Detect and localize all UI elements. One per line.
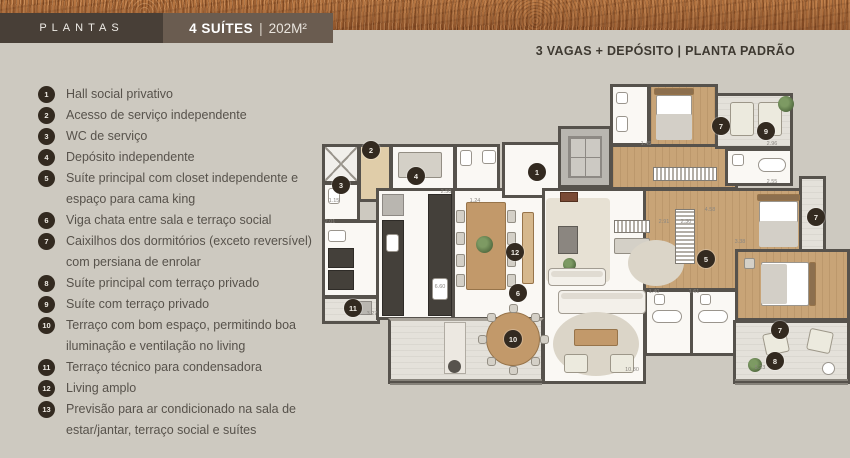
legend-text: Acesso de serviço independente <box>66 105 247 126</box>
plan-marker-3: 3 <box>332 176 350 194</box>
washer-icon <box>328 248 354 268</box>
legend-item: 10Terraço com bom espaço, permitindo boa… <box>38 315 320 357</box>
coffee-table <box>574 329 618 346</box>
terrace-chair <box>531 357 540 366</box>
terrace-chair <box>540 335 549 344</box>
legend-text: Caixilhos dos dormitórios (exceto revers… <box>66 231 320 273</box>
plan-marker-1: 1 <box>528 163 546 181</box>
legend-item: 11Terraço técnico para condensadora <box>38 357 320 378</box>
dimension-label: 2.55 <box>767 179 778 185</box>
terrace-chair <box>531 313 540 322</box>
kitchen-sink-icon <box>386 234 399 252</box>
dimension-label: 2.50 <box>441 189 452 195</box>
dimension-label: 2.96 <box>767 141 778 147</box>
terrace-chair <box>487 313 496 322</box>
bed-headboard <box>809 262 816 306</box>
dimension-label: 3.38 <box>735 239 746 245</box>
dryer-icon <box>328 270 354 290</box>
laundry-sink-icon <box>328 230 346 242</box>
legend-text: Hall social privativo <box>66 84 173 105</box>
plant-icon <box>778 96 794 112</box>
sink-icon <box>700 294 711 305</box>
legend-number-badge: 1 <box>38 86 55 103</box>
corridor-closet <box>653 167 717 181</box>
bathroom-divider-wall <box>690 292 693 353</box>
dimension-label: 10.80 <box>625 367 639 373</box>
tab-4-suites[interactable]: 4 SUÍTES | 202M² <box>163 13 333 43</box>
plan-marker-8: 8 <box>766 352 784 370</box>
terrace-private-br <box>733 320 850 384</box>
bed-blanket <box>759 221 798 247</box>
legend-text: Viga chata entre sala e terraço social <box>66 210 271 231</box>
legend-item: 1Hall social privativo <box>38 84 320 105</box>
dining-chair <box>456 210 465 223</box>
unit-area: 202M² <box>269 21 307 36</box>
legend-list: 1Hall social privativo2Acesso de serviço… <box>38 84 320 441</box>
toilet-icon <box>616 116 628 132</box>
legend-item: 6Viga chata entre sala e terraço social <box>38 210 320 231</box>
sink-icon <box>616 92 628 104</box>
plan-marker-10: 10 <box>504 330 522 348</box>
closet-independente <box>675 209 695 264</box>
bed-blanket <box>656 114 692 140</box>
plan-marker-9: 9 <box>757 122 775 140</box>
legend-item: 5Suíte principal com closet independente… <box>38 168 320 210</box>
bathtub-icon <box>652 310 682 323</box>
sink-icon <box>732 154 744 166</box>
dining-chair <box>456 254 465 267</box>
dimension-label: 1.45 <box>641 141 652 147</box>
dimension-label: 1.24 <box>470 198 481 204</box>
legend-number-badge: 4 <box>38 149 55 166</box>
parking-info-heading: 3 VAGAS + DEPÓSITO | PLANTA PADRÃO <box>536 44 795 58</box>
legend-text: Suíte principal com closet independente … <box>66 168 320 210</box>
legend-item: 2Acesso de serviço independente <box>38 105 320 126</box>
armchair <box>806 328 834 355</box>
terrace-chair <box>509 366 518 375</box>
plan-marker-6: 6 <box>509 284 527 302</box>
legend-number-badge: 8 <box>38 275 55 292</box>
unit-title: 4 SUÍTES <box>189 21 253 36</box>
legend-item: 13Previsão para ar condicionado na sala … <box>38 399 320 441</box>
dimension-label: 2.30 <box>681 219 692 225</box>
legend-text: WC de serviço <box>66 126 147 147</box>
legend-text: Terraço com bom espaço, permitindo boa i… <box>66 315 320 357</box>
balcony-rail <box>390 379 542 385</box>
legend-item: 7Caixilhos dos dormitórios (exceto rever… <box>38 231 320 273</box>
legend-item: 4Depósito independente <box>38 147 320 168</box>
elevator-car-icon <box>568 136 602 178</box>
dining-chair <box>456 232 465 245</box>
plan-marker-7: 7 <box>771 321 789 339</box>
plan-marker-7: 7 <box>807 208 825 226</box>
legend-number-badge: 3 <box>38 128 55 145</box>
bed-headboard <box>654 88 694 95</box>
sofa-main <box>558 290 646 314</box>
legend-text: Living amplo <box>66 378 136 399</box>
dimension-label: 6.60 <box>435 284 446 290</box>
tab-plantas[interactable]: PLANTAS <box>0 13 163 43</box>
dimension-label: 4.58 <box>705 207 716 213</box>
floor-plan: 123456797781011121.152.012.501.246.603.2… <box>320 82 850 394</box>
legend-number-badge: 9 <box>38 296 55 313</box>
bar-stool <box>448 360 461 373</box>
tv-console <box>558 226 578 254</box>
legend-text: Suíte principal com terraço privado <box>66 273 259 294</box>
legend-text: Previsão para ar condicionado na sala de… <box>66 399 320 441</box>
legend-number-badge: 13 <box>38 401 55 418</box>
lounge-chair <box>730 102 754 136</box>
legend-item: 8Suíte principal com terraço privado <box>38 273 320 294</box>
terrace-chair <box>487 357 496 366</box>
dimension-label: 1.40 <box>649 289 660 295</box>
dimension-label: 2.01 <box>325 219 336 225</box>
plan-marker-4: 4 <box>407 167 425 185</box>
plan-marker-5: 5 <box>697 250 715 268</box>
legend-number-badge: 11 <box>38 359 55 376</box>
bench <box>560 192 578 202</box>
sink-icon <box>654 294 665 305</box>
dining-chair <box>507 210 516 223</box>
terrace-chair <box>478 335 487 344</box>
shower-icon <box>482 150 496 164</box>
legend-number-badge: 2 <box>38 107 55 124</box>
dimension-label: 1.15 <box>329 198 340 204</box>
plan-marker-12: 12 <box>506 243 524 261</box>
side-table <box>822 362 835 375</box>
dimension-label: 1.61 <box>689 289 700 295</box>
dimension-label: 3.27 <box>367 311 378 317</box>
dimension-label: 5.23 <box>755 365 766 371</box>
plan-marker-11: 11 <box>344 299 362 317</box>
dining-chair <box>456 274 465 287</box>
plan-marker-7: 7 <box>712 117 730 135</box>
terrace-chair <box>509 304 518 313</box>
legend-item: 3WC de serviço <box>38 126 320 147</box>
armchair <box>564 354 588 373</box>
legend-number-badge: 7 <box>38 233 55 250</box>
dimension-label: 2.91 <box>659 219 670 225</box>
legend-text: Depósito independente <box>66 147 195 168</box>
toilet-icon <box>460 150 472 166</box>
plantas-label: PLANTAS <box>39 22 123 34</box>
legend-number-badge: 10 <box>38 317 55 334</box>
sofa-small <box>548 268 606 286</box>
title-divider: | <box>259 21 263 36</box>
legend-text: Suíte com terraço privado <box>66 294 209 315</box>
bed-headboard <box>757 194 800 201</box>
plan-marker-2: 2 <box>362 141 380 159</box>
legend-number-badge: 5 <box>38 170 55 187</box>
balcony-rail <box>735 379 848 385</box>
suite-closet <box>614 220 650 233</box>
bathtub-icon <box>698 310 728 323</box>
legend-number-badge: 6 <box>38 212 55 229</box>
plant-icon <box>476 236 493 253</box>
bathtub-icon <box>758 158 786 172</box>
legend-item: 9Suíte com terraço privado <box>38 294 320 315</box>
nightstand <box>744 258 755 269</box>
sideboard <box>522 212 534 284</box>
bed-blanket <box>761 264 787 304</box>
fridge-icon <box>382 194 404 216</box>
legend-item: 12Living amplo <box>38 378 320 399</box>
legend-number-badge: 12 <box>38 380 55 397</box>
legend-text: Terraço técnico para condensadora <box>66 357 262 378</box>
